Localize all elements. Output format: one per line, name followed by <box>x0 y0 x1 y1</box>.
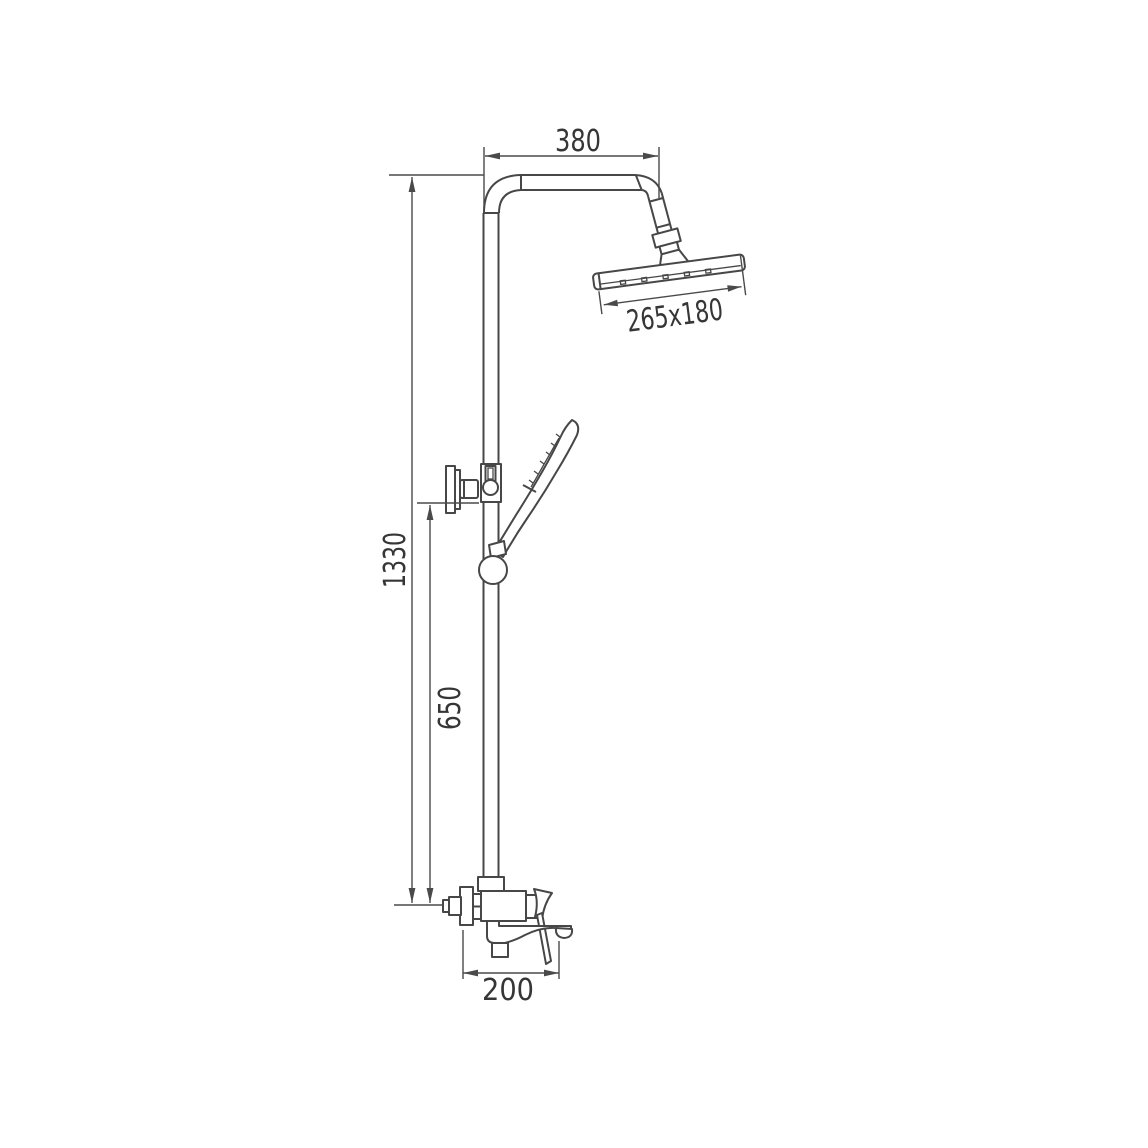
dim-label-top-arm-width: 380 <box>555 124 601 159</box>
dim-label-spout-reach: 200 <box>482 973 534 1008</box>
inlet-nut <box>449 897 461 915</box>
dim-slide-bar-height: 650 <box>417 503 479 903</box>
hand-shower-wall-bracket <box>446 466 478 513</box>
drawing-canvas: 265x180 <box>0 0 1148 1148</box>
spout-aerator <box>556 928 572 938</box>
mixer-body <box>481 891 526 921</box>
slider-lock-knob <box>483 480 498 495</box>
dim-label-total-height: 1330 <box>378 532 413 588</box>
technical-drawing-svg: 265x180 <box>0 0 1148 1148</box>
holder-ring <box>479 556 507 584</box>
shower-arm-connector <box>641 191 689 269</box>
shower-head: 265x180 <box>593 254 753 343</box>
hose-outlet <box>492 943 508 957</box>
dim-label-slide-bar-height: 650 <box>433 686 468 730</box>
dim-top-arm-width: 380 <box>484 124 659 212</box>
bracket-knob <box>460 480 478 498</box>
top-arm-pipe <box>484 175 662 213</box>
inlet-washer <box>443 900 449 912</box>
pipe-collar <box>478 877 504 891</box>
lever-handle <box>537 913 551 964</box>
hand-shower-wand <box>494 420 578 557</box>
slide-rail-slider <box>481 464 501 502</box>
dim-total-height: 1330 <box>378 175 484 905</box>
